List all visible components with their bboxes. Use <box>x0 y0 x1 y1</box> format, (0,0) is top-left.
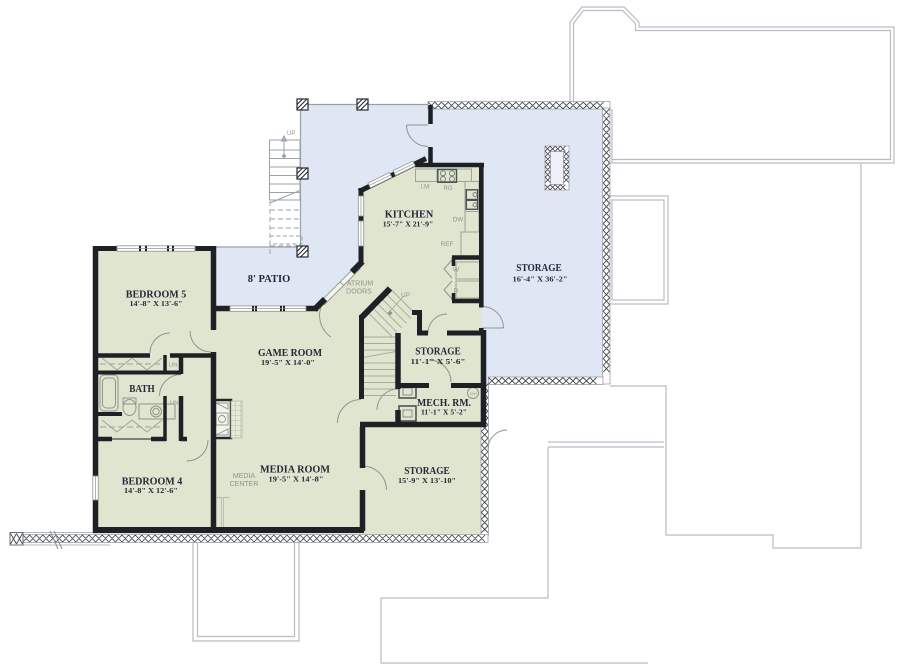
svg-text:19'-5" X 14'-0": 19'-5" X 14'-0" <box>261 358 315 367</box>
svg-text:RG: RG <box>444 186 453 192</box>
svg-text:11'-1" X 5'-2": 11'-1" X 5'-2" <box>421 407 467 416</box>
svg-text:STORAGE: STORAGE <box>516 263 562 274</box>
svg-text:UP: UP <box>401 292 410 299</box>
svg-text:15'-7" X 21'-9": 15'-7" X 21'-9" <box>383 219 434 228</box>
svg-text:BATH: BATH <box>129 384 155 395</box>
svg-text:16'-4" X 36'-2": 16'-4" X 36'-2" <box>513 274 568 283</box>
svg-text:I.M: I.M <box>421 185 429 191</box>
svg-text:DW: DW <box>453 217 465 224</box>
svg-text:WH: WH <box>470 391 477 396</box>
svg-text:14'-8" X 13'-6": 14'-8" X 13'-6" <box>130 299 183 308</box>
svg-text:11'-1" X 5'-6": 11'-1" X 5'-6" <box>411 357 466 366</box>
svg-text:REF: REF <box>441 241 454 248</box>
svg-text:W: W <box>453 267 460 274</box>
svg-text:ATRIUM: ATRIUM <box>347 281 373 288</box>
svg-text:15'-9" X 13'-10": 15'-9" X 13'-10" <box>398 476 456 485</box>
svg-text:LIN: LIN <box>169 363 178 369</box>
svg-text:MEDIA: MEDIA <box>233 473 256 480</box>
svg-text:D: D <box>454 288 459 295</box>
svg-text:14'-8" X 12'-6": 14'-8" X 12'-6" <box>124 486 178 495</box>
svg-text:8' PATIO: 8' PATIO <box>248 274 291 285</box>
svg-text:CENTER: CENTER <box>230 481 259 488</box>
svg-text:LIN: LIN <box>170 401 179 407</box>
svg-text:UP: UP <box>287 131 295 137</box>
svg-text:DOORS: DOORS <box>346 289 372 296</box>
svg-text:19'-5" X 14'-8": 19'-5" X 14'-8" <box>269 474 324 483</box>
